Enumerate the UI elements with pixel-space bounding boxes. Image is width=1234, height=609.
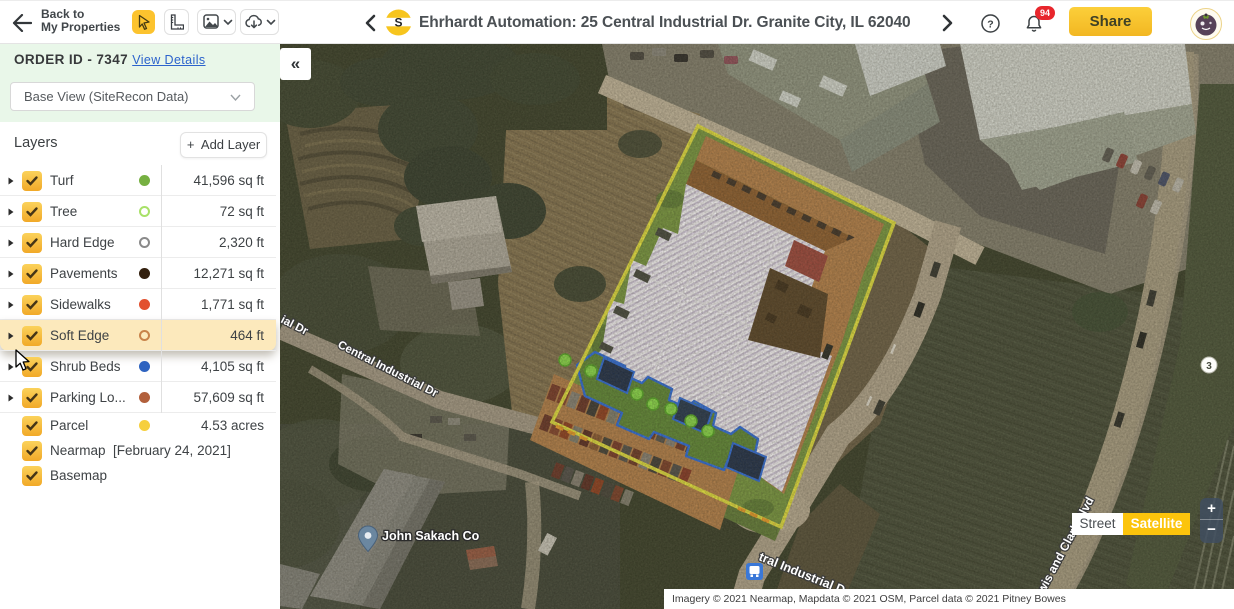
svg-text:?: ?: [987, 19, 993, 31]
svg-text:John Sakach Co: John Sakach Co: [382, 529, 480, 543]
svg-text:S: S: [394, 15, 402, 29]
svg-text:3: 3: [1206, 361, 1212, 372]
